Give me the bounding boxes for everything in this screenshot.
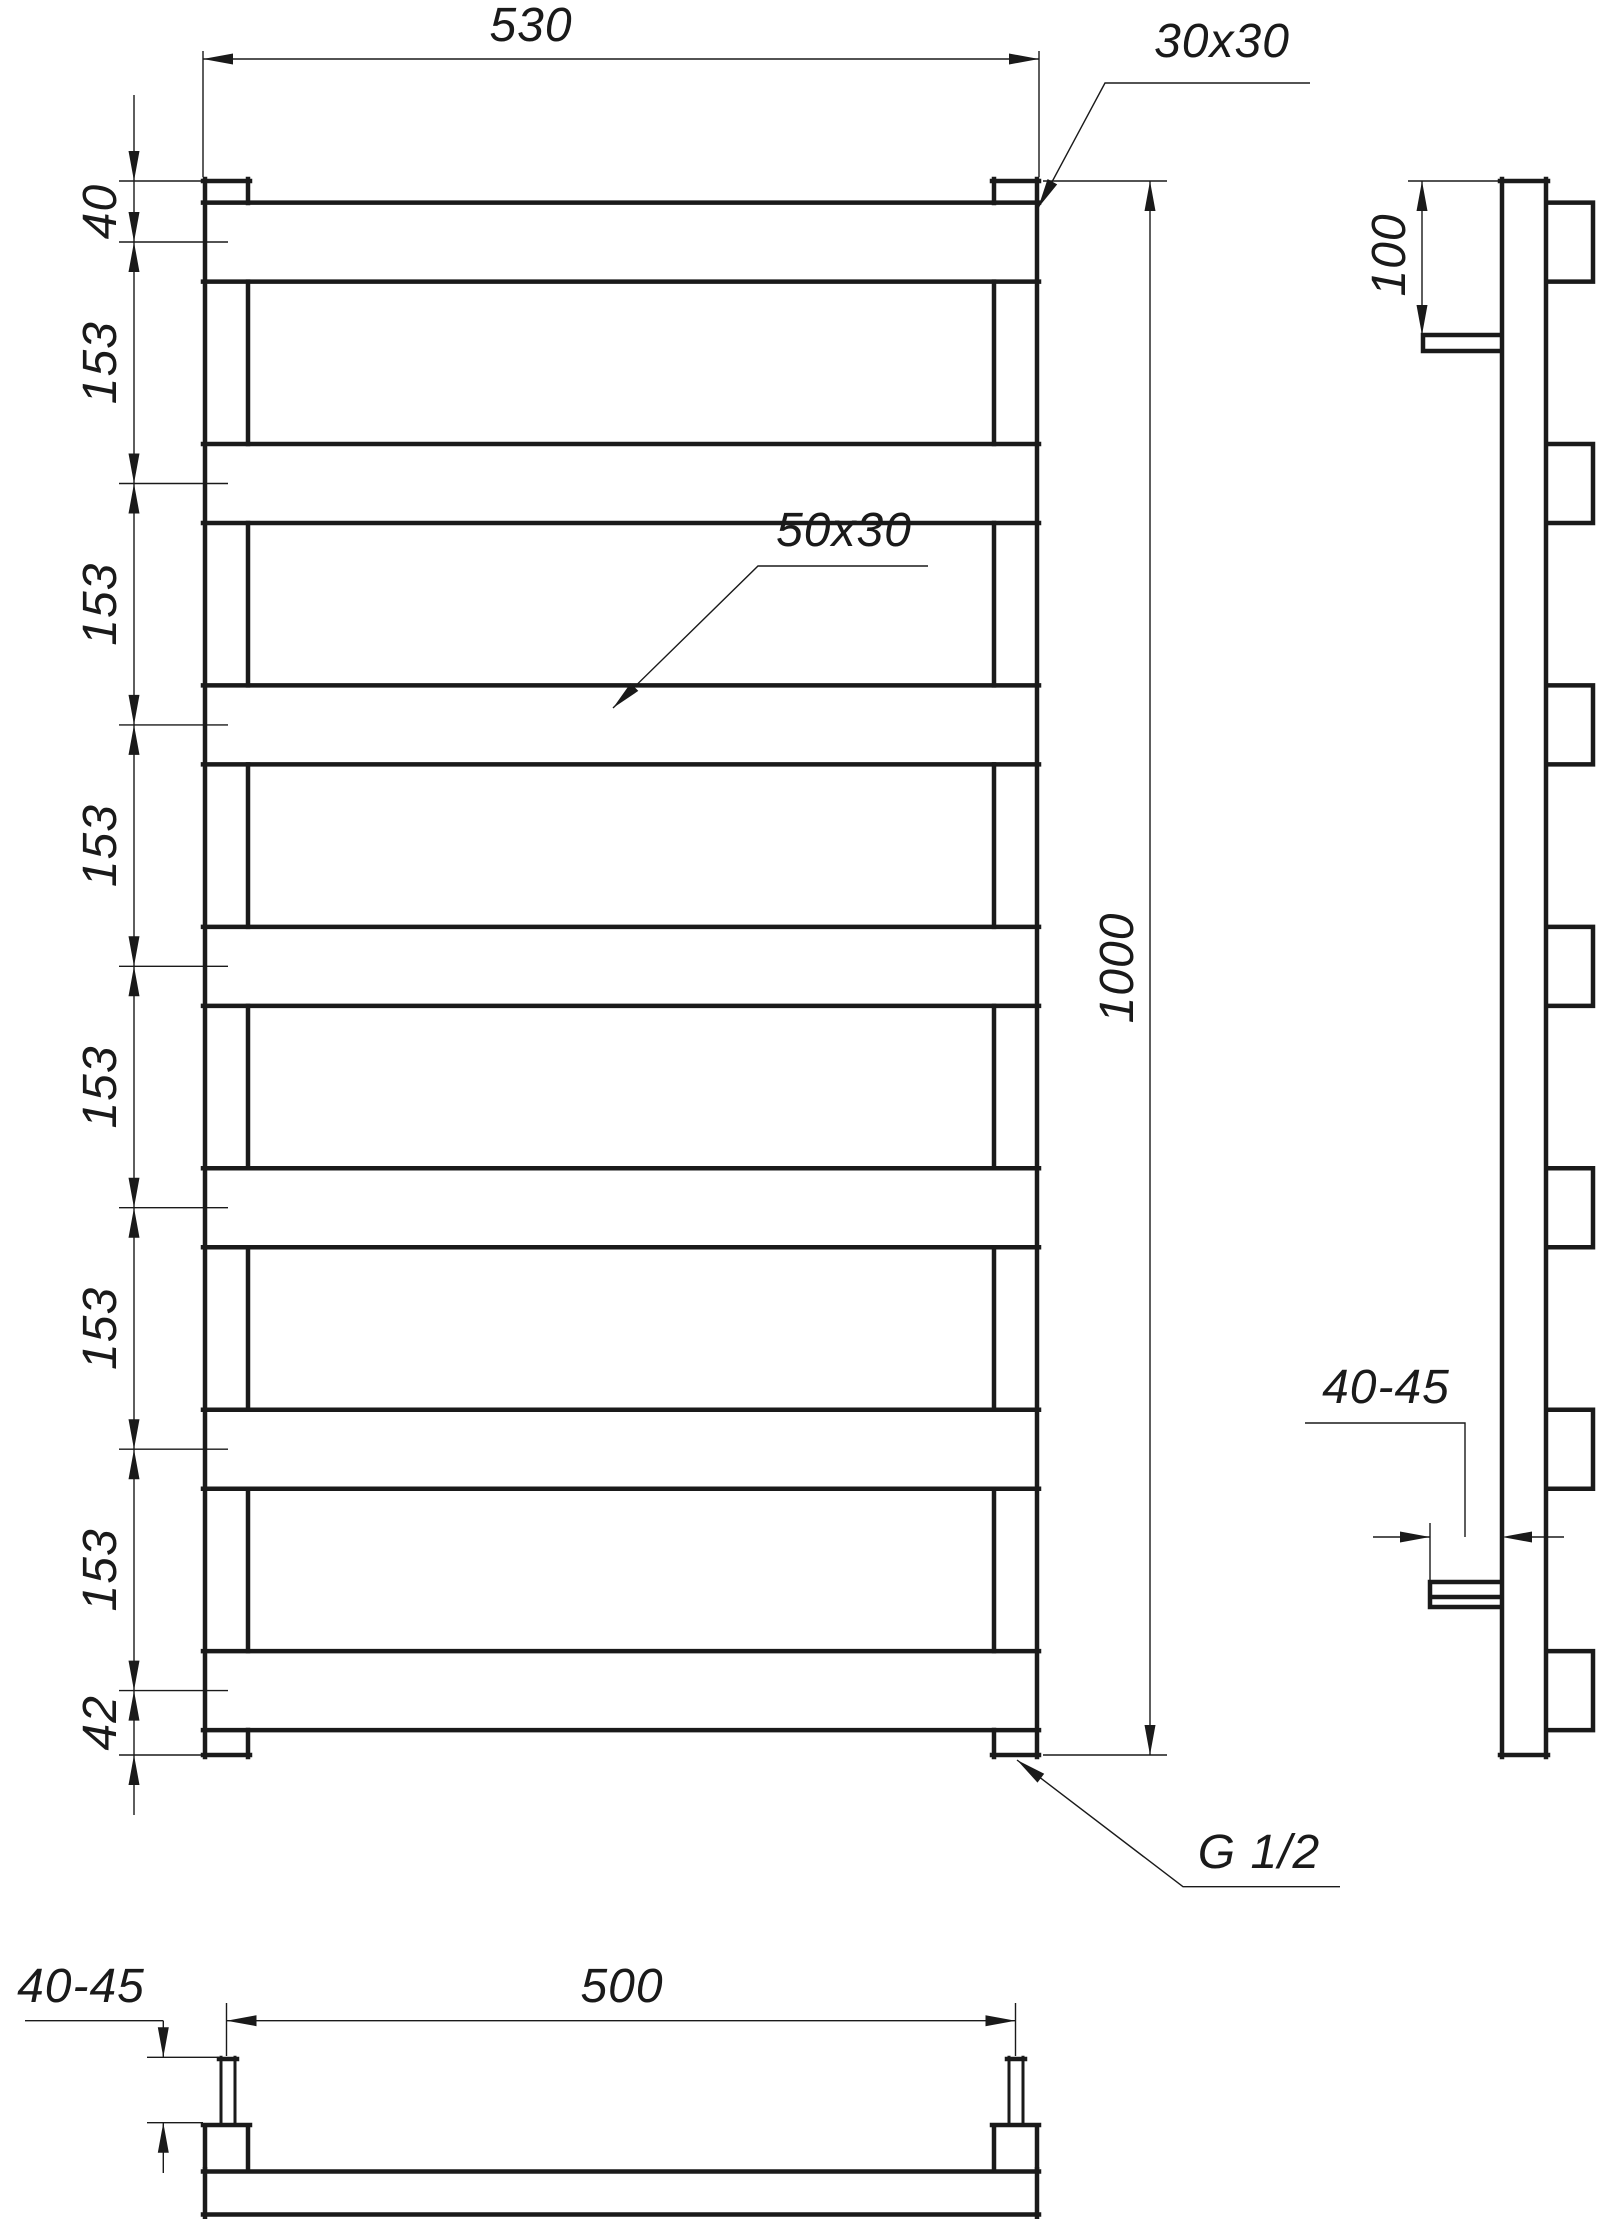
side-wall-bracket-top bbox=[1423, 335, 1500, 351]
dimension-lines bbox=[25, 51, 1564, 2173]
bottom-pipe-fittings bbox=[221, 2057, 1023, 2122]
dimension-arrowheads bbox=[129, 54, 1533, 2153]
dim-label-height-1000: 1000 bbox=[1091, 913, 1144, 1024]
front-post-caps bbox=[203, 179, 1039, 1757]
dim-label-rung-profile-50x30: 50x30 bbox=[776, 504, 912, 557]
side-post-bar bbox=[1500, 179, 1548, 1757]
front-outer-edges bbox=[205, 179, 1037, 1757]
drawing-canvas: 530 30x30 50x30 1000 40 153 153 153 153 … bbox=[0, 0, 1600, 2221]
dim-label-bracket-offset-100: 100 bbox=[1363, 213, 1416, 296]
bottom-view bbox=[203, 2057, 1039, 2216]
dim-label-rung-spacing-153-1: 153 bbox=[74, 321, 127, 404]
dim-label-top-spacing-40: 40 bbox=[74, 184, 127, 239]
side-wall-bracket-bottom bbox=[1430, 1582, 1500, 1607]
front-rung-edges bbox=[203, 203, 1039, 1731]
dim-label-rung-spacing-153-6: 153 bbox=[74, 1528, 127, 1611]
leader-30x30 bbox=[1038, 83, 1310, 208]
dim-label-rung-spacing-153-3: 153 bbox=[74, 804, 127, 887]
dim-label-wall-distance-40-45: 40-45 bbox=[1322, 1361, 1450, 1414]
dim-label-rung-spacing-153-4: 153 bbox=[74, 1045, 127, 1128]
front-post-inner-edges bbox=[248, 282, 994, 1652]
dim-label-post-profile-30x30: 30x30 bbox=[1154, 15, 1290, 68]
dim-label-connection-spacing-500: 500 bbox=[580, 1960, 663, 2013]
dim-label-pipe-protrusion-40-45: 40-45 bbox=[17, 1960, 145, 2013]
dim-label-rung-spacing-153-2: 153 bbox=[74, 563, 127, 646]
dim-4045-bottom-lines bbox=[25, 2021, 219, 2173]
dim-label-bottom-spacing-42: 42 bbox=[74, 1695, 127, 1750]
towel-rail-technical-drawing: 530 30x30 50x30 1000 40 153 153 153 153 … bbox=[0, 0, 1600, 2221]
dim-label-width-530: 530 bbox=[489, 0, 572, 52]
bottom-post-ends bbox=[203, 2125, 1039, 2169]
dim-label-thread-g12: G 1/2 bbox=[1198, 1826, 1320, 1879]
front-view bbox=[203, 179, 1039, 1757]
bottom-rung-bar bbox=[203, 2169, 1039, 2216]
dim-label-rung-spacing-153-5: 153 bbox=[74, 1287, 127, 1370]
dim-530-lines bbox=[203, 51, 1039, 177]
side-view bbox=[1423, 179, 1593, 1757]
dim-4045-side-lines bbox=[1305, 1423, 1564, 1580]
side-rung-stubs bbox=[1548, 203, 1593, 1731]
